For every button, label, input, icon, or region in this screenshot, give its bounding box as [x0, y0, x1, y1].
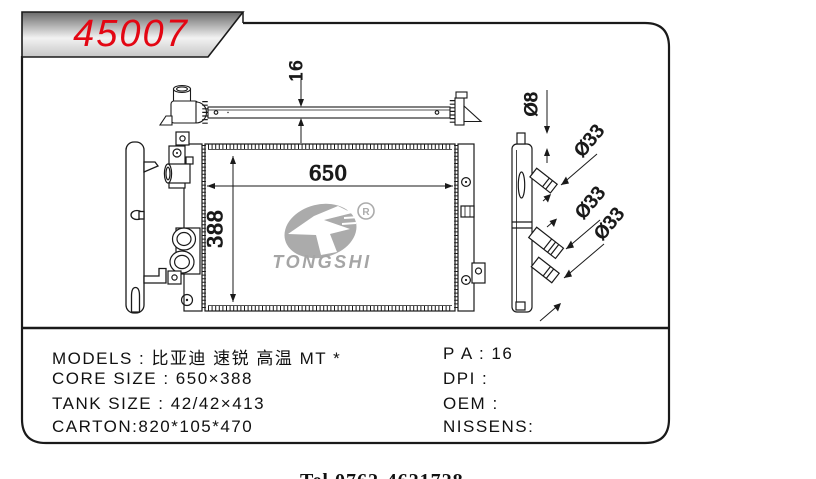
dim-16-label: 16 — [287, 60, 307, 82]
spec-carton: CARTON:820*105*470 — [52, 417, 253, 437]
spec-tank-size: TANK SIZE : 42/42×413 — [52, 394, 265, 414]
left-tank-lower-tab — [144, 269, 166, 284]
logo-brand-text: TONGSHI — [272, 252, 371, 272]
top-view-right-bracket — [453, 92, 482, 125]
dim-16: 16 — [287, 60, 307, 143]
spec-pa: P A : 16 — [443, 344, 513, 364]
top-view-bar — [208, 107, 450, 118]
dim-388-label: 388 — [203, 210, 227, 248]
pipe-middle — [529, 227, 564, 258]
pipe-lower — [531, 257, 559, 282]
registered-mark-text: R — [362, 207, 370, 218]
part-number-text: 45007 — [73, 13, 189, 55]
footer-phone: Tel 0762-4621728 — [300, 470, 464, 479]
spec-sheet-page: 45007 16 — [0, 0, 816, 479]
left-tank-upper-tab — [144, 162, 158, 172]
pipe-upper — [530, 168, 557, 193]
front-view-right-tank — [458, 144, 485, 311]
tank-side-view-right: Ø8 Ø33 Ø33 Ø33 — [512, 90, 629, 321]
spec-dpi: DPI : — [443, 369, 488, 389]
tank-side-profile-left — [126, 142, 166, 313]
top-view-left-fitting — [160, 86, 207, 126]
radiator-top-view: 16 — [160, 60, 481, 143]
inlet-peg — [517, 133, 525, 144]
front-view-left-tank — [164, 132, 202, 311]
spec-nissens: NISSENS: — [443, 417, 534, 437]
dim-dia8-label: Ø8 — [522, 92, 542, 117]
spec-oem: OEM : — [443, 394, 499, 414]
part-number-banner: 45007 — [22, 12, 243, 57]
spec-models: MODELS : 比亚迪 速锐 高温 MT * — [52, 344, 341, 369]
dim-dia33-upper-label: Ø33 — [571, 121, 609, 161]
spec-core-size: CORE SIZE : 650×388 — [52, 369, 253, 389]
dim-650-label: 650 — [309, 161, 347, 185]
